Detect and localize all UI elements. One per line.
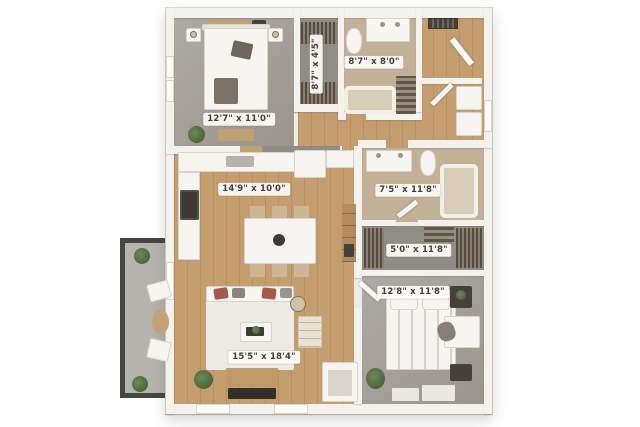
balcony-chair-2 [146,338,172,362]
dining-chair [250,264,265,277]
tray-plant [252,326,260,334]
entry-closet-shelf-a [456,86,482,110]
linen-shelves [396,76,416,114]
toilet-2 [420,150,436,176]
closet-rack-left [364,228,384,268]
bed-2-pillow [422,297,450,310]
sofa-pillow-red [261,287,276,299]
wall-outer-top [166,8,492,18]
label-bathroom-1-dims: 8'7" x 8'0" [344,56,403,69]
bookshelf [298,316,322,348]
cabinet-grate [344,244,354,257]
cube-table-opening [328,370,352,396]
faucet-2 [395,22,400,27]
entry-closet-shelf-b [456,112,482,136]
window-bedroom-1-a [166,56,174,78]
vanity-2 [366,150,412,172]
plant-bedroom-1 [188,126,205,143]
plant-bedroom-2 [366,368,385,389]
entry-door-opening [484,100,492,132]
wall-hall-south-b [408,140,492,148]
closet-rack-right [456,228,482,268]
sofa-pillow-gray [280,288,292,298]
kitchen-counter-right [326,150,354,168]
label-bedroom-2-dims: 12'8" x 11'8" [377,286,449,299]
balcony-table [152,310,169,334]
floor-plan-render: 12'7" x 11'0" 8'7" x 4'5" 8'7" x 8'0" 14… [0,0,640,427]
balcony-plant-bottom [132,376,148,392]
rug-small [392,388,419,401]
label-living-room-dims: 15'5" x 18'4" [228,351,300,364]
plant-living [194,370,213,389]
table-centerpiece [273,234,285,246]
wall-bath2-closet-a [362,220,396,226]
label-closet-1-dims: 8'7" x 4'5" [310,34,323,93]
balcony-plant-top [134,248,150,264]
fridge [294,150,326,178]
wall-bathroom-1-south-a [338,112,346,120]
wall-hall-south-a [358,140,386,148]
bathtub-1 [344,86,396,114]
floor-lamp [290,296,306,312]
closet-dresser [424,226,454,242]
label-bathroom-2-dims: 7'5" x 11'8" [375,184,440,197]
lamp-left [190,31,197,38]
rug-small [422,385,455,401]
faucet-4 [398,153,403,158]
label-bedroom-1-dims: 12'7" x 11'0" [203,113,275,126]
sofa-pillow-gray [232,288,245,298]
nightstand-plant [456,290,466,300]
media-console [226,368,278,386]
wall-closet-bedroom-2 [362,270,484,276]
nightstand-dark-bottom [450,364,472,381]
bathtub-2 [440,164,478,218]
kitchen-sink [226,156,254,167]
label-kitchen-dims: 14'9" x 10'0" [218,183,290,196]
window-bedroom-1-b [166,80,174,102]
wall-outer-right [484,8,492,414]
bed-1-throw [214,78,238,104]
sofa-pillow-red [213,287,228,300]
wall-entry-closet [422,78,482,84]
wall-closet-1-west [294,8,300,112]
dining-chair [294,264,309,277]
toilet-1 [346,28,362,54]
ceiling-vent [428,18,458,29]
faucet-3 [376,153,381,158]
label-walk-in-closet-dims: 5'0" x 11'8" [386,244,451,257]
vanity-1 [366,18,410,42]
stove [180,190,199,220]
bench [218,129,254,141]
lamp-right [272,31,279,38]
faucet-1 [380,22,385,27]
wall-entry-west [416,8,422,112]
bed-2-pillow [390,297,418,310]
window-living-b [274,404,308,414]
window-living-a [196,404,230,414]
dining-chair [272,264,287,277]
wall-closet-1-south [294,104,342,112]
tv [228,388,276,399]
